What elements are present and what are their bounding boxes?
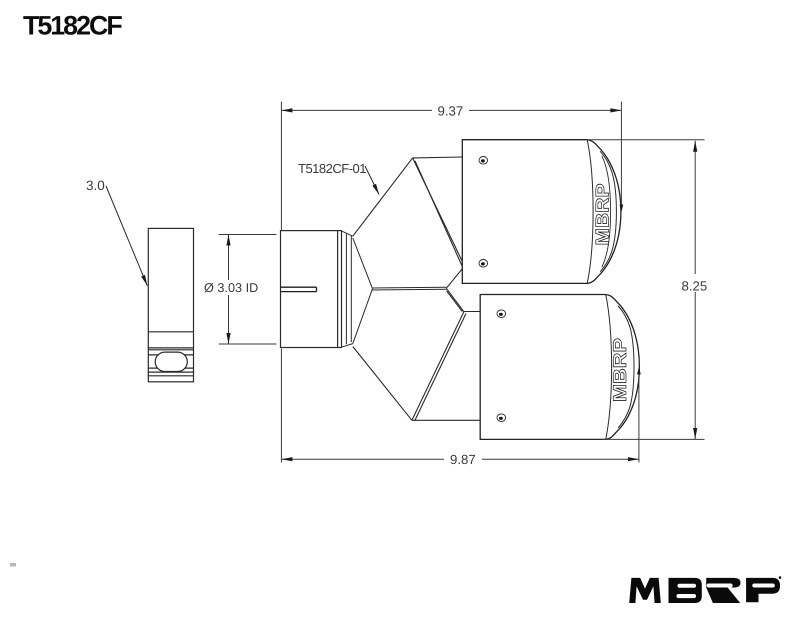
svg-text:T5182CF-01: T5182CF-01 (298, 161, 366, 176)
svg-text:9.37: 9.37 (438, 103, 464, 118)
svg-text:MBRP: MBRP (609, 338, 630, 402)
svg-text:Ø 3.03 ID: Ø 3.03 ID (204, 281, 258, 295)
svg-text:T5182CF: T5182CF (23, 11, 122, 41)
svg-text:8.25: 8.25 (682, 279, 708, 294)
svg-text:9.87: 9.87 (450, 452, 476, 467)
svg-text:3.0: 3.0 (86, 178, 105, 193)
svg-text:MBRP: MBRP (592, 184, 613, 246)
